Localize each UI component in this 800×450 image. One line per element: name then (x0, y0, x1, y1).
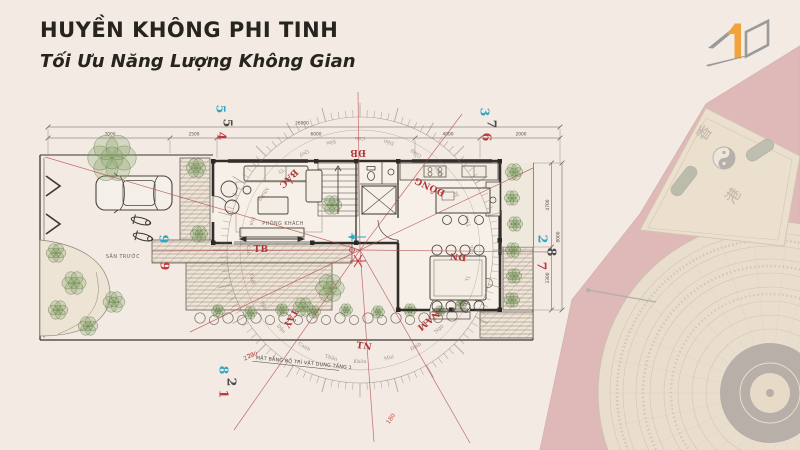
page-title: HUYỀN KHÔNG PHI TINH (40, 18, 356, 42)
logo-gray-frame (746, 21, 768, 57)
shrub-icon (186, 159, 206, 177)
dimension-label: 7000 (105, 132, 116, 138)
shrub-icon (505, 164, 523, 180)
flying-star-digit: 2 (225, 378, 240, 387)
shrub-icon (48, 301, 68, 319)
luopan-compass-image: 香 港 (540, 46, 800, 450)
mountain-label: Giáp (409, 147, 423, 159)
shrub-icon (371, 306, 384, 318)
flying-star-digit: 7 (535, 262, 550, 271)
mountain-label: Cấn (354, 135, 365, 142)
flying-star-digit: 6 (480, 133, 495, 142)
flying-star-digit: 7 (485, 120, 500, 129)
logo-orange-flag (727, 24, 735, 35)
header: HUYỀN KHÔNG PHI TINH Tối Ưu Năng Lượng K… (40, 18, 356, 72)
mountain-label: Mùi (383, 353, 395, 362)
direction-label: ĐN (449, 250, 467, 261)
brand-logo (706, 12, 778, 76)
flying-star-digit: 3 (478, 108, 493, 117)
mountain-label: Canh (297, 341, 312, 353)
flying-star-digit: 4 (215, 132, 230, 141)
shrub-icon (211, 305, 224, 317)
poster-canvas: HUYỀN KHÔNG PHI TINH Tối Ưu Năng Lượng K… (0, 0, 800, 450)
dimension-label: 2000 (516, 132, 527, 138)
flying-star-digit: 2 (536, 235, 551, 244)
shrub-icon (504, 191, 519, 205)
living-room-label: PHÒNG KHÁCH (262, 220, 304, 227)
direction-label: TN (356, 341, 373, 353)
direction-label: ĐB (350, 147, 366, 157)
flying-star-digit: 1 (217, 390, 232, 399)
mountain-label: Khôn (353, 358, 367, 365)
shrub-icon (339, 304, 352, 316)
shrub-icon (88, 135, 136, 180)
mountain-label: Thân (324, 353, 339, 363)
shrub-icon (504, 293, 519, 307)
brand-logo-icon (706, 12, 778, 72)
dimension-label: 3300 (545, 272, 551, 283)
shrub-icon (505, 243, 520, 257)
flying-star-digit: 9 (157, 235, 172, 244)
mountain-label: Ngọ (433, 323, 445, 335)
shrub-icon (78, 317, 98, 335)
flying-star-digit: 5 (221, 119, 236, 128)
logo-orange-stem (735, 24, 742, 59)
flying-star-digit: 8 (217, 366, 232, 375)
logo-gray-wedge-bottom (706, 56, 746, 67)
flying-star-digit: 5 (214, 105, 229, 114)
luopan-yinyang-icon (713, 147, 735, 169)
front-yard-label: SÂN TRƯỚC (106, 253, 140, 260)
shrub-icon (46, 244, 66, 262)
shrub-icon (62, 272, 86, 295)
mountain-label: Dần (382, 137, 395, 148)
dimension-label: 8000 (556, 231, 562, 242)
flying-star-digit: 8 (545, 248, 560, 257)
mountain-label: Tốn (468, 244, 475, 254)
motorbike-icon (130, 214, 154, 245)
page-subtitle: Tối Ưu Năng Lượng Không Gian (40, 51, 356, 72)
mountain-label: Đinh (409, 341, 423, 353)
shrub-icon (190, 226, 208, 242)
shrub-icon (103, 292, 125, 313)
degree-label: 180 (385, 412, 397, 426)
shrub-icon (506, 269, 521, 283)
dimension-label: 4700 (545, 199, 551, 210)
flying-star-digit: 9 (158, 262, 173, 271)
shrub-icon (507, 217, 522, 231)
mountain-label: Quý (298, 148, 310, 159)
dimension-label: 26000 (295, 121, 309, 127)
dimension-label: 2500 (189, 132, 200, 138)
direction-label: TB (254, 245, 269, 255)
mountain-label: Sửu (325, 138, 337, 148)
